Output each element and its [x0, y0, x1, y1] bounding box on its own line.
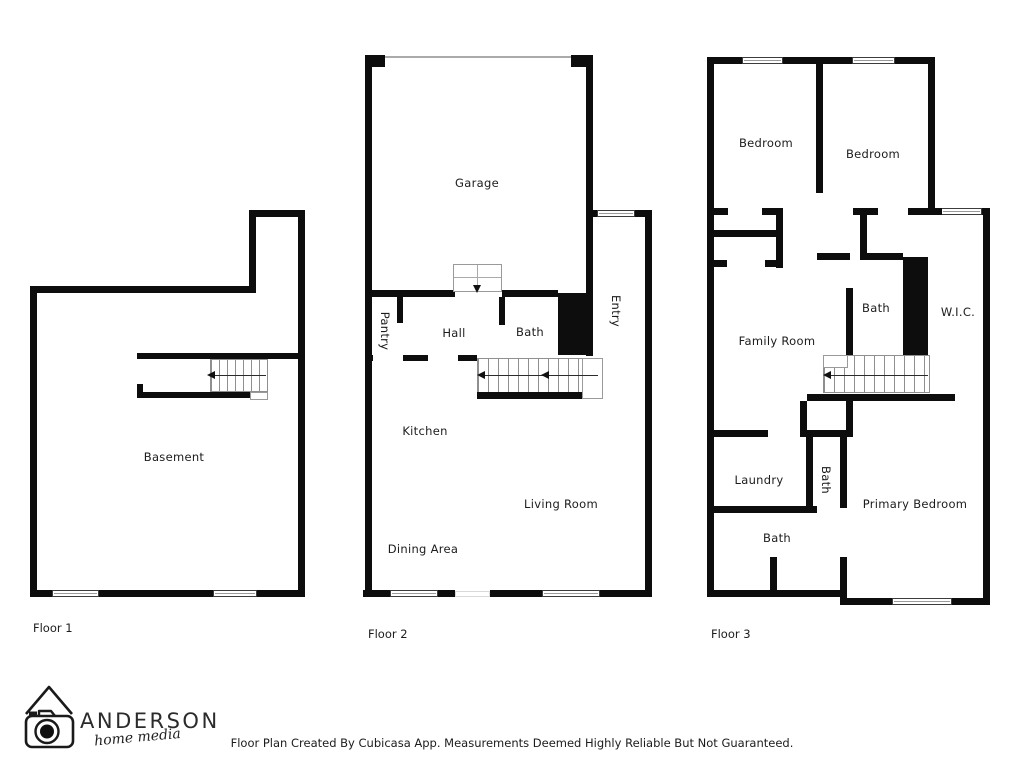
room-label-wic: W.I.C.	[941, 305, 975, 319]
wall	[840, 437, 847, 508]
room-label-primary-bedroom: Primary Bedroom	[863, 497, 968, 511]
floor-3-label: Floor 3	[711, 627, 751, 641]
wall	[765, 260, 783, 267]
wall	[816, 57, 823, 193]
window-glyph	[852, 57, 895, 64]
room-label-bedroom-2: Bedroom	[846, 147, 900, 161]
wall	[707, 590, 847, 597]
wall	[710, 208, 728, 215]
window-glyph	[941, 208, 982, 215]
floor-plan-canvas: Basement Floor 1	[0, 0, 1024, 768]
wall	[707, 57, 714, 597]
stair-direction-arrow-icon	[823, 371, 831, 379]
wall	[710, 430, 768, 437]
wall	[983, 208, 990, 605]
chimney-block	[903, 257, 928, 355]
room-label-laundry: Laundry	[735, 473, 784, 487]
wall	[806, 437, 813, 507]
room-label-bath-lower: Bath	[763, 531, 791, 545]
room-label-bath-small: Bath	[819, 466, 833, 494]
floor-3-plan: Bedroom Bedroom Bath W.I.C. Family Room …	[0, 0, 1024, 768]
wall	[712, 230, 776, 237]
wall	[860, 253, 903, 260]
stair-direction-line	[830, 375, 928, 376]
wall	[807, 394, 955, 401]
wall	[846, 288, 853, 355]
wall	[710, 506, 817, 513]
room-label-family-room: Family Room	[739, 334, 816, 348]
wall	[710, 260, 727, 267]
wall	[840, 598, 892, 605]
room-label-bath-upper: Bath	[862, 301, 890, 315]
footer-credit-text: Floor Plan Created By Cubicasa App. Meas…	[0, 736, 1024, 750]
window-glyph	[742, 57, 783, 64]
window-glyph	[892, 598, 952, 605]
wall	[952, 598, 990, 605]
room-label-bedroom-1: Bedroom	[739, 136, 793, 150]
wall	[928, 57, 935, 215]
wall	[800, 430, 850, 437]
stair-landing	[823, 355, 848, 368]
wall	[776, 208, 783, 268]
wall	[817, 253, 850, 260]
wall	[853, 208, 878, 215]
wall	[908, 208, 942, 215]
